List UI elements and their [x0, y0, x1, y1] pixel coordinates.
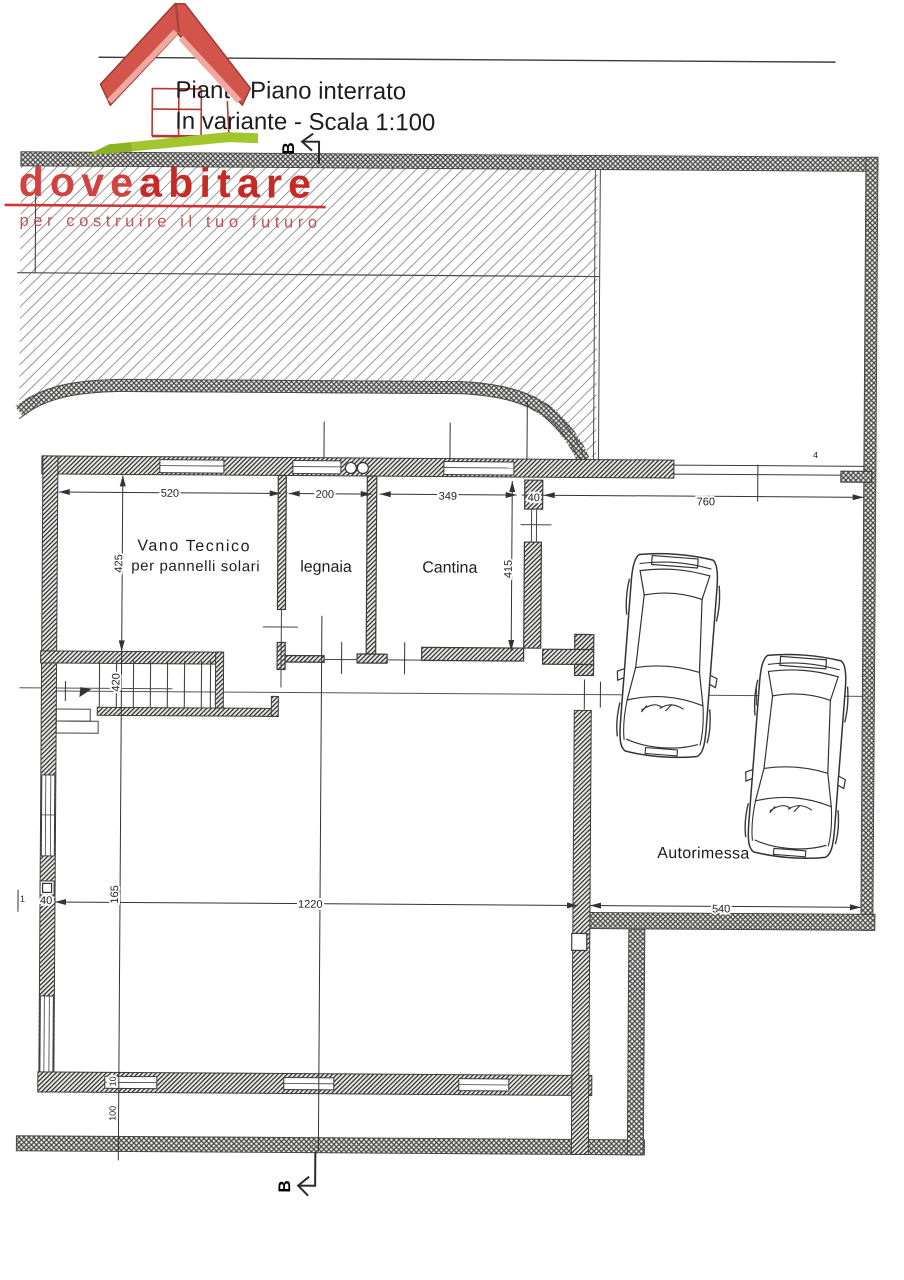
svg-text:Cantina: Cantina — [422, 559, 477, 576]
svg-text:540: 540 — [712, 903, 730, 915]
svg-text:100: 100 — [108, 1106, 118, 1121]
svg-text:520: 520 — [161, 488, 179, 500]
svg-text:Pianta Piano interrato: Pianta Piano interrato — [175, 77, 406, 106]
svg-text:349: 349 — [439, 491, 457, 503]
svg-text:per costruire il tuo futuro: per costruire il tuo futuro — [19, 212, 321, 232]
svg-text:doveabitare: doveabitare — [19, 159, 318, 207]
svg-text:425: 425 — [113, 554, 125, 572]
svg-text:Vano Tecnico: Vano Tecnico — [137, 538, 251, 556]
svg-text:legnaia: legnaia — [300, 559, 352, 576]
svg-text:40: 40 — [528, 492, 540, 504]
svg-text:420: 420 — [110, 673, 122, 691]
svg-text:40: 40 — [40, 895, 52, 907]
svg-text:B: B — [279, 142, 298, 154]
svg-text:1: 1 — [20, 894, 25, 904]
svg-text:165: 165 — [109, 885, 121, 903]
svg-text:per pannelli solari: per pannelli solari — [131, 557, 260, 575]
svg-text:200: 200 — [316, 489, 334, 501]
svg-text:In variante - Scala 1:100: In variante - Scala 1:100 — [175, 108, 435, 137]
svg-text:B: B — [275, 1180, 294, 1192]
svg-text:760: 760 — [697, 496, 715, 508]
svg-text:4: 4 — [813, 450, 818, 460]
svg-text:10: 10 — [108, 1076, 118, 1086]
svg-text:Autorimessa: Autorimessa — [657, 845, 749, 863]
svg-text:1220: 1220 — [298, 899, 323, 911]
svg-text:415: 415 — [503, 560, 515, 578]
